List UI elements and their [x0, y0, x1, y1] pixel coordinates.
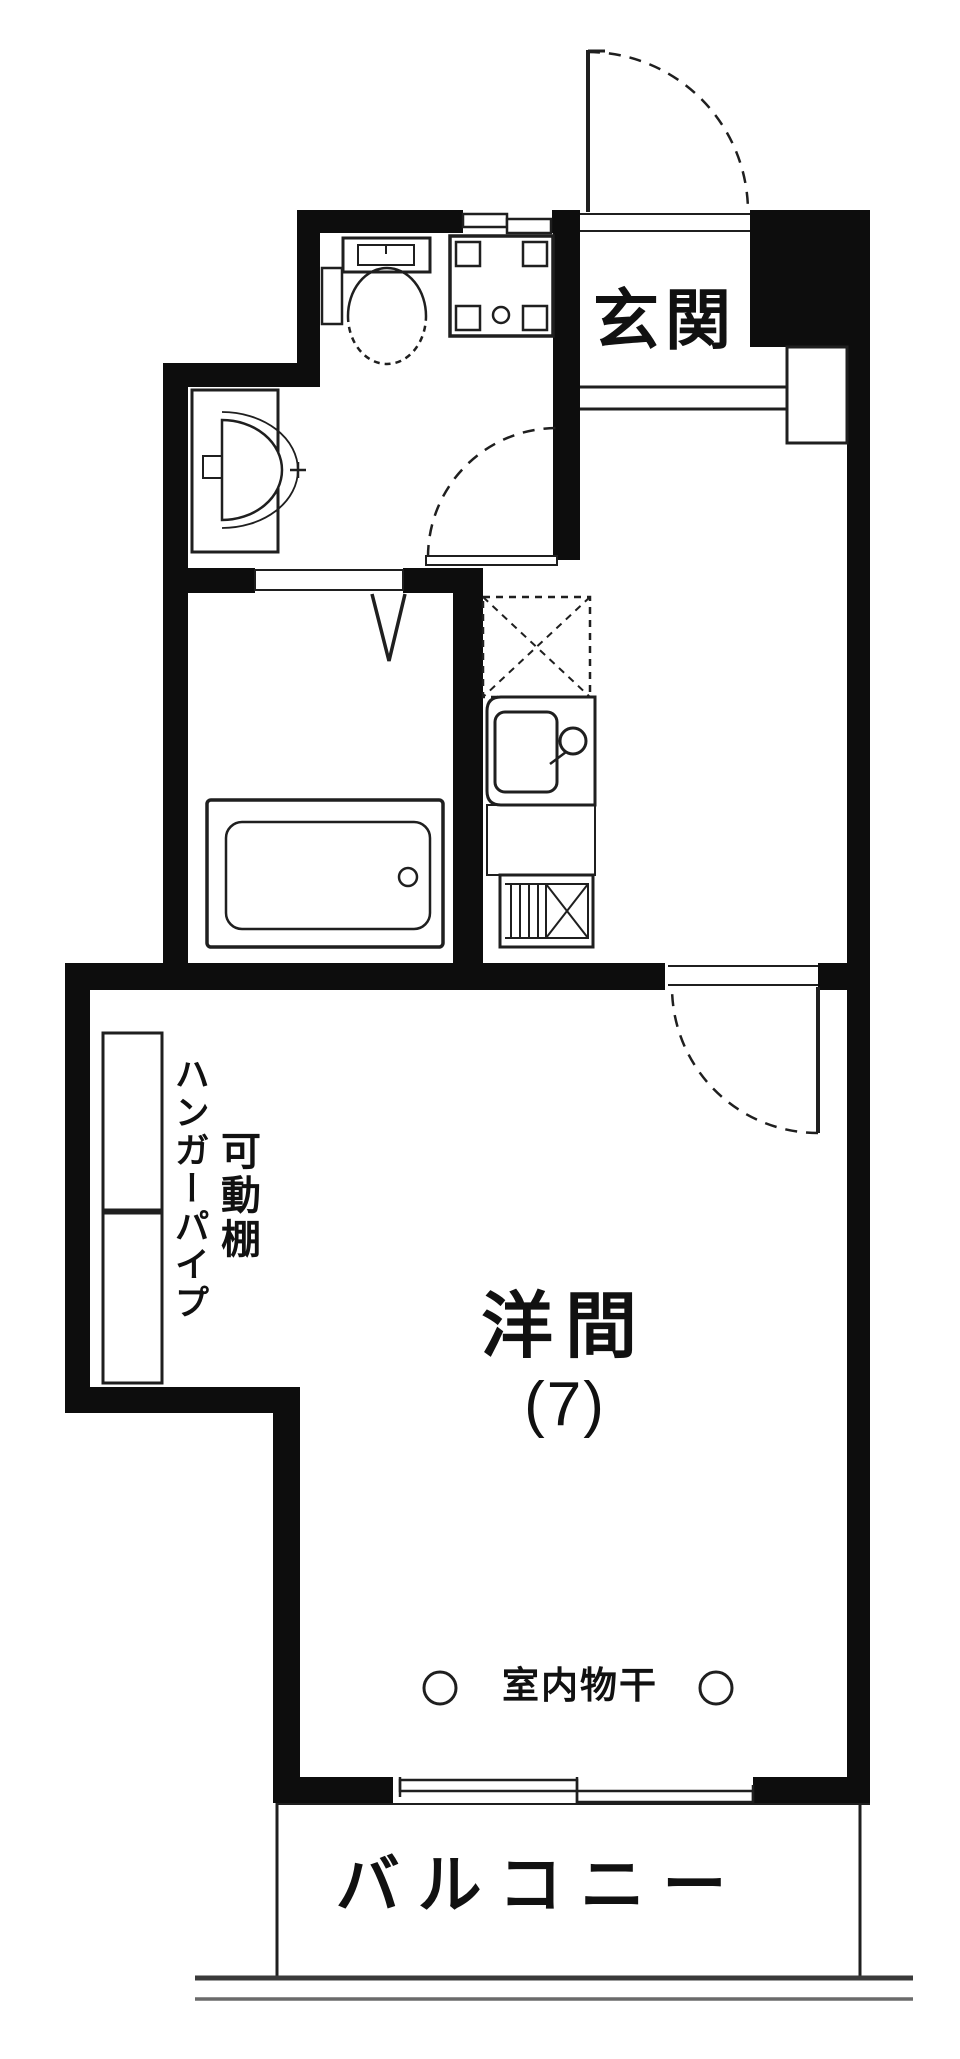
wall-segment: [65, 963, 665, 990]
wall-segment: [553, 233, 580, 560]
wall-segment: [297, 210, 463, 233]
closet-shelves: [103, 1033, 162, 1383]
genkan-step: [580, 387, 787, 409]
toilet: [322, 238, 430, 364]
wall-segment: [65, 1387, 300, 1413]
floor-plan-drawing: [0, 0, 960, 2059]
room-door-swing-arc: [672, 987, 818, 1133]
wall-segment: [847, 347, 870, 1803]
wall-segment: [453, 568, 483, 963]
kitchen-sink: [487, 697, 595, 805]
indoor-drying-label: 室内物干: [420, 1667, 740, 1706]
wash-basin: [192, 390, 306, 552]
refrigerator-space: [483, 597, 590, 697]
wall-segment: [163, 363, 320, 387]
wall-segment: [65, 990, 90, 1413]
kitchen-counter: [487, 805, 595, 875]
wall-segment: [750, 210, 870, 347]
wall-segment: [297, 210, 320, 387]
balcony-label: バルコニー: [240, 1852, 840, 1919]
wall-segment: [163, 387, 188, 963]
wall-segment: [753, 1777, 870, 1803]
room-size-label: (7): [440, 1372, 690, 1437]
bathroom-door-lintel: [255, 570, 403, 590]
washing-machine-pan: [450, 236, 553, 336]
washroom-door: [426, 428, 557, 565]
wall-segment: [403, 568, 453, 593]
bathroom-folding-door: [372, 594, 405, 661]
movable-shelf-label: 可動棚: [216, 1130, 258, 1280]
hanger-pipe-label: ハンガーパイプ: [170, 1056, 207, 1366]
entrance-door-swing-arc: [588, 52, 748, 212]
small-window: [463, 214, 551, 233]
wall-segments: [65, 210, 870, 1803]
wall-segment: [297, 1777, 393, 1803]
entrance-door: [580, 50, 750, 231]
wall-segment: [273, 1413, 300, 1803]
shoe-cabinet: [787, 347, 847, 443]
wall-segment: [552, 210, 580, 233]
floor-plan: 玄関 洋間 (7) 室内物干 バルコニー ハンガーパイプ 可動棚: [0, 0, 960, 2059]
wall-segment: [818, 963, 870, 990]
bathtub: [207, 800, 443, 947]
building-base-lines: [195, 1978, 913, 1999]
room-door: [668, 966, 818, 1133]
wall-segment: [188, 568, 255, 593]
entrance-label: 玄関: [593, 286, 753, 355]
washroom-door-swing-arc: [428, 428, 557, 557]
room-label: 洋間: [440, 1290, 690, 1366]
washroom-door-leaf: [426, 556, 557, 565]
gas-stove: [500, 875, 593, 947]
